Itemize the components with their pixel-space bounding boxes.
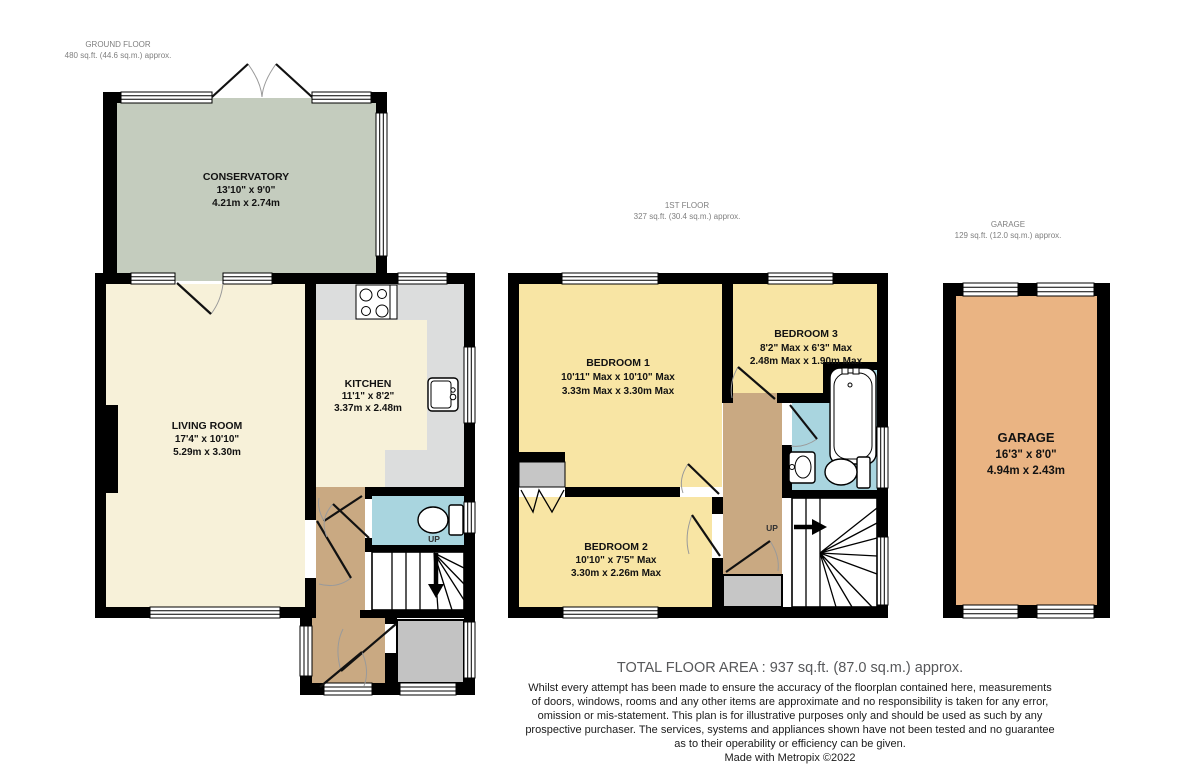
sink-icon: [428, 378, 458, 411]
bedroom2-label: BEDROOM 2: [584, 541, 648, 553]
garage-plan: GARAGE 129 sq.ft. (12.0 sq.m.) approx. G…: [943, 220, 1110, 618]
bedroom1-imperial: 10'11" Max x 10'10" Max: [561, 372, 675, 383]
disclaimer-line-2: of doors, windows, rooms and any other i…: [532, 696, 1049, 708]
disclaimer-line-5: as to their operability or efficiency ca…: [674, 738, 906, 750]
landing-cupboard-floor: [723, 575, 782, 607]
living-room-label: LIVING ROOM: [172, 420, 243, 432]
bathtub-icon: [830, 368, 876, 464]
kitchen-floor-2: [316, 450, 385, 487]
toilet-icon: [825, 457, 870, 488]
kitchen-imperial: 11'1" x 8'2": [342, 391, 395, 402]
ground-floor-up-label: UP: [428, 534, 440, 544]
bedroom3-label: BEDROOM 3: [774, 328, 838, 340]
garage-label: GARAGE: [997, 430, 1054, 445]
ground-floor-plan: GROUND FLOOR 480 sq.ft. (44.6 sq.m.) app…: [65, 40, 475, 695]
bedroom1-metric: 3.33m Max x 3.30m Max: [562, 386, 675, 397]
disclaimer-line-3: omission or mis-statement. This plan is …: [538, 710, 1043, 722]
first-floor-plan: 1ST FLOOR 327 sq.ft. (30.4 sq.m.) approx…: [508, 201, 888, 618]
basin-icon: [789, 452, 815, 483]
toilet-icon: [418, 505, 463, 535]
bedroom2-imperial: 10'10" x 7'5" Max: [576, 555, 657, 566]
ground-floor-stairs: [372, 552, 464, 610]
total-floor-area: TOTAL FLOOR AREA : 937 sq.ft. (87.0 sq.m…: [617, 660, 963, 676]
landing-floor: [723, 393, 782, 575]
garage-title: GARAGE: [991, 220, 1025, 229]
conservatory-imperial: 13'10" x 9'0": [217, 185, 276, 196]
floorplan-page: GROUND FLOOR 480 sq.ft. (44.6 sq.m.) app…: [0, 0, 1200, 784]
footer: TOTAL FLOOR AREA : 937 sq.ft. (87.0 sq.m…: [525, 660, 1054, 764]
entrance-hall-floor: [312, 618, 385, 683]
first-floor-stairs: [792, 498, 877, 607]
garage-area: 129 sq.ft. (12.0 sq.m.) approx.: [955, 231, 1062, 240]
kitchen-label: KITCHEN: [345, 378, 392, 390]
living-room-metric: 5.29m x 3.30m: [173, 447, 241, 458]
disclaimer-line-1: Whilst every attempt has been made to en…: [528, 682, 1052, 694]
bedroom3-imperial: 8'2" Max x 6'3" Max: [760, 343, 853, 354]
garage-metric: 4.94m x 2.43m: [987, 465, 1065, 477]
bedroom2-metric: 3.30m x 2.26m Max: [571, 568, 661, 579]
cupboard-floor: [519, 462, 565, 487]
hallway-floor: [316, 487, 365, 618]
disclaimer-line-4: prospective purchaser. The services, sys…: [525, 724, 1054, 736]
ground-floor-area: 480 sq.ft. (44.6 sq.m.) approx.: [65, 51, 172, 60]
floorplan-drawing: GROUND FLOOR 480 sq.ft. (44.6 sq.m.) app…: [0, 0, 1200, 784]
ground-floor-title: GROUND FLOOR: [85, 40, 151, 49]
bedroom1-label: BEDROOM 1: [586, 357, 650, 369]
first-floor-up-label: UP: [766, 523, 778, 533]
first-floor-area: 327 sq.ft. (30.4 sq.m.) approx.: [634, 212, 741, 221]
hob-icon: [356, 285, 397, 319]
bedroom3-metric: 2.48m Max x 1.90m Max: [750, 356, 863, 367]
garage-imperial: 16'3" x 8'0": [995, 449, 1056, 461]
conservatory-label: CONSERVATORY: [203, 171, 289, 183]
kitchen-metric: 3.37m x 2.48m: [334, 403, 402, 414]
living-room-floor: [106, 284, 305, 607]
conservatory-metric: 4.21m x 2.74m: [212, 198, 280, 209]
credit-line: Made with Metropix ©2022: [724, 752, 855, 764]
living-room-imperial: 17'4" x 10'10": [175, 434, 240, 445]
porch-floor: [397, 620, 464, 683]
first-floor-title: 1ST FLOOR: [665, 201, 710, 210]
